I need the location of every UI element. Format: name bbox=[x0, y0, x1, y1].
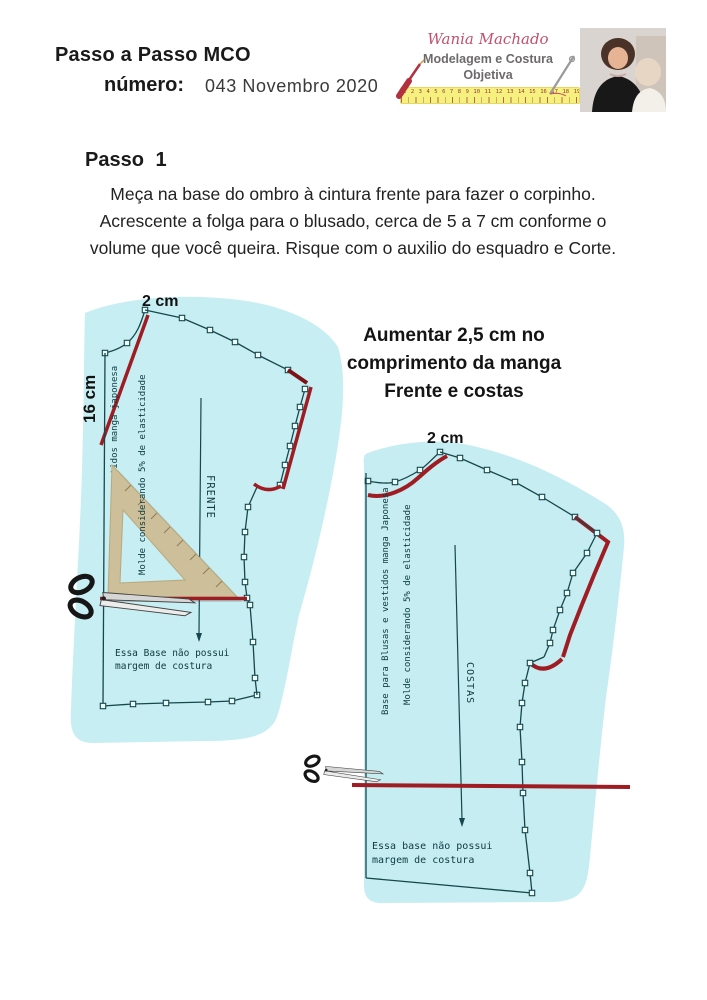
brand-logo: Wania Machado Modelagem e Costura Objeti… bbox=[398, 28, 666, 112]
back-piece-label: COSTAS bbox=[464, 662, 475, 704]
front-16cm-label: 16 cm bbox=[80, 375, 99, 423]
annotation-line-3: Frente e costas bbox=[340, 378, 568, 406]
needle-icon bbox=[546, 52, 580, 98]
back-note-line-1: Essa base não possui bbox=[372, 841, 492, 852]
document-page: Passo a Passo MCO número: 043 Novembro 2… bbox=[0, 0, 707, 1000]
back-pattern-diagram: COSTAS Base para Blusas e vestidos manga… bbox=[300, 425, 640, 915]
seam-ripper-icon bbox=[394, 56, 428, 100]
back-edge-text: Base para Blusas e vestidos manga Japone… bbox=[381, 487, 391, 715]
step-instructions: Meça na base do ombro à cintura frente p… bbox=[62, 181, 644, 262]
front-note-line-2: margem de costura bbox=[115, 661, 212, 672]
issue-number-value: 043 Novembro 2020 bbox=[205, 76, 378, 97]
issue-number-label: número: bbox=[104, 74, 184, 97]
step-heading: Passo 1 bbox=[85, 149, 167, 172]
logo-brand-name: Wania Machado bbox=[398, 30, 578, 48]
step-line-3: volume que você queira. Risque com o aux… bbox=[62, 235, 644, 262]
annotation-line-1: Aumentar 2,5 cm no bbox=[340, 322, 568, 350]
annotation-line-2: comprimento da manga bbox=[340, 350, 568, 378]
logo-text-block: Wania Machado Modelagem e Costura Objeti… bbox=[398, 28, 578, 112]
front-piece-label: FRENTE bbox=[204, 475, 216, 519]
step-line-1: Meça na base do ombro à cintura frente p… bbox=[62, 181, 644, 208]
front-mold-text: Molde considerando 5% de elasticidade bbox=[138, 375, 148, 575]
back-mold-text: Molde considerando 5% de elasticidade bbox=[403, 505, 413, 705]
back-red-cut-line bbox=[352, 785, 630, 787]
back-note-line-2: margem de costura bbox=[372, 855, 474, 866]
logo-photo bbox=[580, 28, 666, 112]
back-2cm-label: 2 cm bbox=[427, 430, 463, 447]
sleeve-annotation: Aumentar 2,5 cm no comprimento da manga … bbox=[340, 322, 568, 406]
front-note-line-1: Essa Base não possui bbox=[115, 648, 230, 659]
step-line-2: Acrescente a folga para o blusado, cerca… bbox=[62, 208, 644, 235]
page-title: Passo a Passo MCO bbox=[55, 44, 251, 67]
front-2cm-label: 2 cm bbox=[142, 293, 178, 310]
